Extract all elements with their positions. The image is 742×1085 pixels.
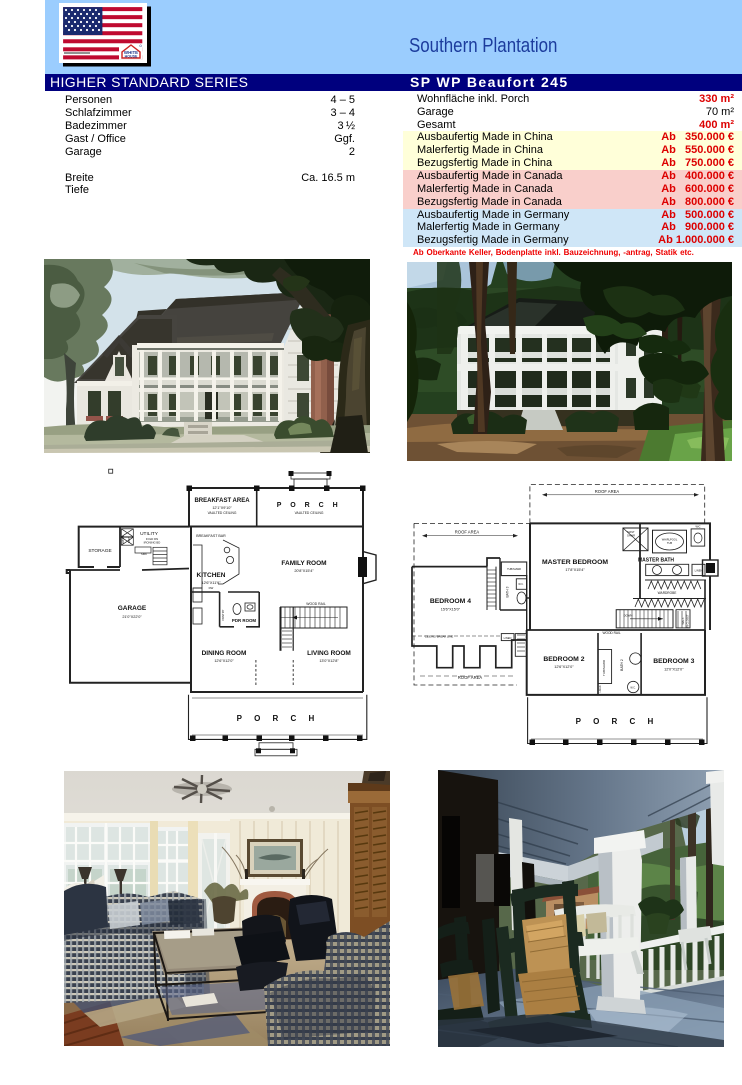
svg-text:12'0"X12'0": 12'0"X12'0" (664, 668, 684, 672)
svg-text:IN CLOSET: IN CLOSET (687, 614, 690, 628)
svg-text:P O R C H: P O R C H (237, 714, 320, 723)
svg-text:12'6"X12'0": 12'6"X12'0" (554, 665, 574, 669)
svg-text:WOOD RAIL: WOOD RAIL (602, 631, 620, 635)
svg-text:W/C: W/C (695, 525, 700, 529)
svg-text:ROOF AREA: ROOF AREA (595, 489, 620, 494)
svg-text:20'8"X15'4": 20'8"X15'4" (294, 569, 314, 573)
svg-text:17'8"X15'4": 17'8"X15'4" (565, 568, 585, 572)
svg-text:FAMILY ROOM: FAMILY ROOM (281, 560, 326, 567)
svg-text:12'1"X9'10": 12'1"X9'10" (212, 506, 232, 510)
svg-text:12'6"X11'9": 12'6"X11'9" (201, 581, 221, 585)
svg-text:CEILING BREAK LINE: CEILING BREAK LINE (425, 635, 454, 639)
svg-text:PANTRY: PANTRY (221, 609, 225, 620)
svg-text:WASH: WASH (121, 536, 125, 544)
svg-text:BREAKFAST BAR: BREAKFAST BAR (196, 534, 226, 538)
svg-text:HOUSE: HOUSE (125, 55, 138, 59)
svg-text:MAST: MAST (627, 530, 635, 534)
svg-text:DOWN: DOWN (624, 614, 633, 618)
svg-text:STORAGE: STORAGE (88, 548, 111, 554)
svg-text:LINEN: LINEN (504, 636, 512, 640)
svg-text:DW: DW (209, 586, 214, 590)
svg-text:WOOD RAIL: WOOD RAIL (306, 602, 326, 606)
svg-text:BATH 3: BATH 3 (506, 586, 510, 597)
svg-text:GARAGE: GARAGE (118, 605, 147, 612)
svg-text:P O R C H: P O R C H (277, 502, 341, 509)
svg-text:LINEN: LINEN (695, 569, 703, 573)
svg-text:IRONING BD: IRONING BD (144, 541, 161, 545)
svg-text:13'0"X12'8": 13'0"X12'8" (319, 659, 339, 663)
svg-text:PDR ROOM: PDR ROOM (232, 618, 256, 623)
svg-text:W.C.: W.C. (518, 583, 524, 586)
svg-text:BATH 2: BATH 2 (620, 659, 624, 671)
svg-text:15'6"X15'0": 15'6"X15'0" (441, 608, 461, 612)
svg-text:MASTER BEDROOM: MASTER BEDROOM (542, 559, 608, 566)
svg-text:TUB: TUB (667, 541, 672, 545)
svg-text:VAULTED CEILING: VAULTED CEILING (295, 511, 324, 515)
svg-text:VAULTED CEILING: VAULTED CEILING (208, 511, 237, 515)
svg-text:W.C.: W.C. (630, 687, 636, 690)
svg-text:SINK: SINK (141, 552, 147, 556)
svg-text:WARDROBE: WARDROBE (658, 591, 677, 595)
svg-text:LIVING ROOM: LIVING ROOM (307, 650, 351, 657)
svg-text:SHWR: SHWR (627, 533, 635, 537)
svg-text:P O R C H: P O R C H (576, 717, 659, 726)
svg-text:LINEN: LINEN (599, 685, 602, 692)
svg-text:21'0"X22'0": 21'0"X22'0" (122, 615, 142, 619)
svg-text:ROOF AREA: ROOF AREA (458, 675, 483, 680)
svg-text:BEDROOM 4: BEDROOM 4 (430, 598, 471, 605)
svg-text:TUB/SHWR: TUB/SHWR (602, 659, 606, 676)
svg-text:TUB/SHWR: TUB/SHWR (507, 567, 521, 571)
svg-text:BEDROOM 2: BEDROOM 2 (543, 656, 584, 663)
svg-text:BEDROOM 3: BEDROOM 3 (653, 658, 694, 665)
svg-text:DINING ROOM: DINING ROOM (202, 650, 247, 657)
svg-text:DRY: DRY (127, 537, 131, 543)
svg-text:ROOF AREA: ROOF AREA (455, 530, 480, 535)
svg-text:MASTER BATH: MASTER BATH (638, 558, 674, 564)
svg-text:WALK: WALK (682, 617, 685, 624)
svg-text:KITCHEN: KITCHEN (197, 572, 226, 579)
svg-text:BREAKFAST AREA: BREAKFAST AREA (194, 498, 250, 504)
svg-text:12'6"X12'0": 12'6"X12'0" (214, 659, 234, 663)
svg-text:WHIRLPOOL: WHIRLPOOL (662, 538, 678, 542)
